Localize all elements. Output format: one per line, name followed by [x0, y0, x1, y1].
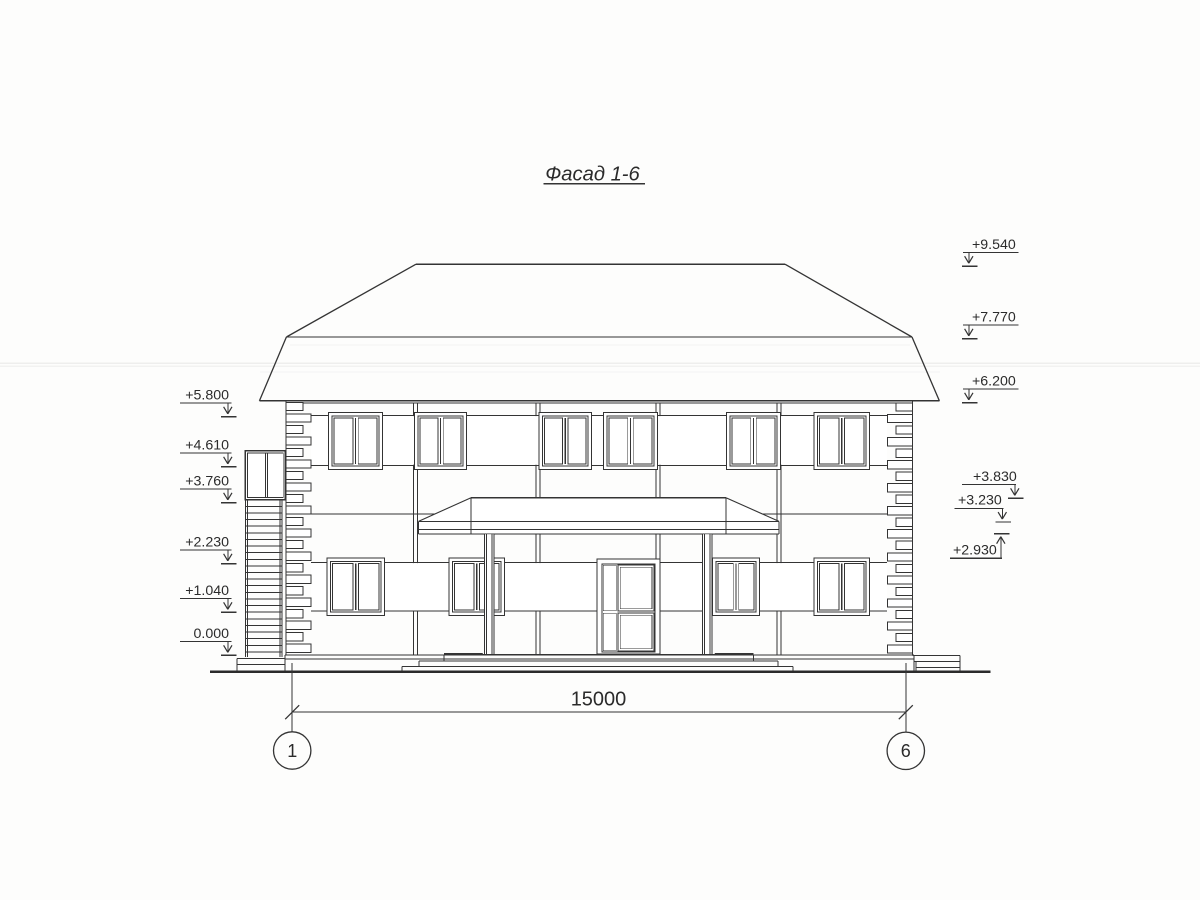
svg-text:+3.760: +3.760	[185, 473, 229, 489]
svg-text:+6.200: +6.200	[972, 373, 1016, 389]
svg-text:+2.230: +2.230	[185, 534, 229, 550]
svg-text:+3.830: +3.830	[973, 469, 1017, 485]
svg-text:+1.040: +1.040	[185, 583, 229, 599]
svg-text:Фасад 1-6: Фасад 1-6	[545, 164, 640, 186]
svg-text:15000: 15000	[571, 689, 627, 711]
svg-text:+3.230: +3.230	[958, 493, 1002, 509]
svg-text:+7.770: +7.770	[972, 309, 1016, 325]
svg-text:1: 1	[287, 741, 297, 761]
svg-text:+4.610: +4.610	[185, 437, 229, 453]
svg-text:+2.930: +2.930	[953, 543, 997, 559]
svg-text:+5.800: +5.800	[185, 387, 229, 403]
svg-text:+9.540: +9.540	[972, 237, 1016, 253]
svg-text:0.000: 0.000	[193, 626, 229, 642]
svg-text:6: 6	[901, 741, 911, 761]
